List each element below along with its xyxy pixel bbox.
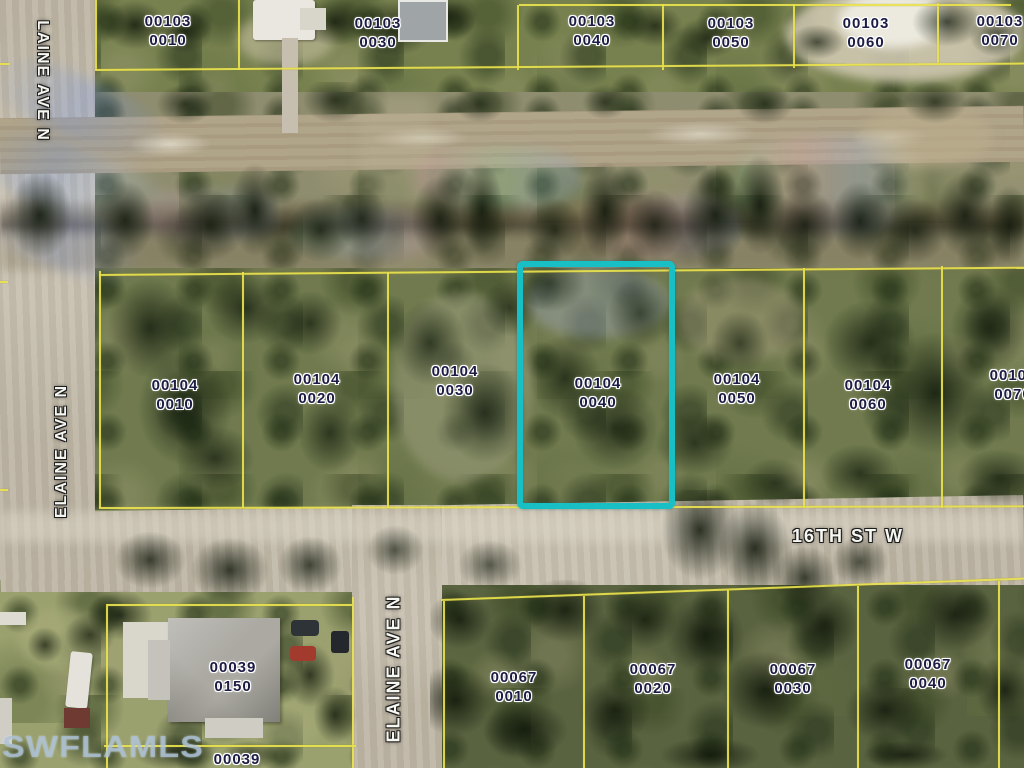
parcel-line [387, 272, 389, 508]
parcel-label-00104-0020: 00104 0020 [269, 370, 365, 408]
parcel-lot: 0060 [818, 33, 914, 52]
parcel-block: 00067 [605, 660, 701, 679]
driveway-top [282, 38, 298, 133]
parcel-line [857, 586, 859, 768]
street-label-elaine-bottom: ELAINE AVE N [384, 569, 405, 768]
street-label-elaine-top-left: LAINE AVE N [33, 0, 51, 181]
parcel-lot: 0070 [965, 385, 1024, 404]
parcel-block: 00103 [120, 12, 216, 31]
parcel-block: 00104 [550, 374, 646, 393]
parcel-label-00103-0070: 00103 0070 [952, 12, 1024, 50]
parcel-line [99, 271, 101, 508]
mls-watermark: SWFLAMLS [2, 729, 204, 765]
parcel-label-00067-0030: 00067 0030 [745, 660, 841, 698]
parcel-lot: 0030 [745, 679, 841, 698]
parcel-line [998, 581, 1000, 768]
parcel-lot: 0050 [689, 389, 785, 408]
parcel-lot: 0010 [127, 395, 223, 414]
car-dark-2 [331, 631, 349, 653]
parcel-lot: 0010 [466, 687, 562, 706]
tree-canopy-median-upper [0, 82, 1024, 132]
parcel-line [107, 604, 353, 606]
parcel-block: 00103 [683, 14, 779, 33]
parcel-block: 00103 [818, 14, 914, 33]
parcel-line [941, 266, 943, 508]
aerial-parcel-map: 00103 0010 00103 0030 00103 0040 00103 0… [0, 0, 1024, 768]
parcel-lot: 0150 [185, 677, 281, 696]
parcel-block: 00067 [466, 668, 562, 687]
parcel-lot: 9 [0, 652, 18, 671]
parcel-lot: 0050 [683, 33, 779, 52]
shed-red [64, 708, 90, 728]
parcel-block: 00104 [820, 376, 916, 395]
parcel-label-left-edge-partial: 9 [0, 652, 18, 671]
parcel-lot: 0060 [820, 395, 916, 414]
parcel-line [727, 590, 729, 768]
parcel-block: 00103 [952, 12, 1024, 31]
parcel-lot: 0010 [120, 31, 216, 50]
parcel-block: 00104 [965, 366, 1024, 385]
parcel-lot: 0020 [269, 389, 365, 408]
parcel-label-00103-0060: 00103 0060 [818, 14, 914, 52]
parcel-line [443, 601, 445, 768]
parcel-line [0, 281, 8, 283]
parcel-block: 00104 [127, 376, 223, 395]
parcel-lot: 0030 [407, 381, 503, 400]
parcel-line [238, 0, 240, 70]
parcel-line [793, 4, 795, 68]
parcel-lot: 0040 [544, 31, 640, 50]
house-bottom-wing [148, 640, 170, 700]
parcel-label-00104-0070: 00104 0070 [965, 366, 1024, 404]
parcel-lot: 0040 [550, 393, 646, 412]
parcel-label-00103-0030: 00103 0030 [330, 14, 426, 52]
parcel-line [583, 596, 585, 768]
street-label-16th-st-w: 16TH ST W [788, 526, 908, 547]
parcel-label-00104-0060: 00104 0060 [820, 376, 916, 414]
parcel-label-00104-0010: 00104 0010 [127, 376, 223, 414]
parcel-label-00103-0010: 00103 0010 [120, 12, 216, 50]
parcel-label-00039-0150: 00039 0150 [185, 658, 281, 696]
parcel-block: 00104 [689, 370, 785, 389]
parcel-label-00067-0020: 00067 0020 [605, 660, 701, 698]
parcel-line [95, 0, 97, 70]
parcel-lot: 0020 [605, 679, 701, 698]
parcel-block: 00104 [269, 370, 365, 389]
parcel-lot: 0030 [330, 33, 426, 52]
parcel-label-00067-0040: 00067 0040 [880, 655, 976, 693]
parcel-lot: 0070 [952, 31, 1024, 50]
parcel-label-00067-0010: 00067 0010 [466, 668, 562, 706]
car-dark-1 [291, 620, 319, 636]
parcel-block: 00104 [407, 362, 503, 381]
parcel-block: 00067 [880, 655, 976, 674]
house-top-annex [300, 8, 326, 30]
parcel-block: 00039 [185, 658, 281, 677]
parcel-line [517, 5, 519, 70]
street-label-elaine-mid-left: ELAINE AVE N [53, 351, 71, 551]
parcel-line [937, 3, 939, 63]
parcel-label-00103-0040: 00103 0040 [544, 12, 640, 50]
parcel-line [242, 272, 244, 508]
parcel-label-00104-0040-highlighted: 00104 0040 [550, 374, 646, 412]
parcel-block: 00103 [544, 12, 640, 31]
parcel-label-00104-0030: 00104 0030 [407, 362, 503, 400]
parcel-line [0, 489, 8, 491]
parcel-line [803, 268, 805, 508]
parcel-line [352, 597, 354, 768]
parcel-line [0, 63, 10, 65]
parcel-lot: 0040 [880, 674, 976, 693]
tree-canopy-median [0, 155, 1024, 273]
car-red [290, 646, 316, 661]
parcel-block: 00067 [745, 660, 841, 679]
parcel-line [519, 4, 1011, 6]
parcel-line [662, 4, 664, 70]
parcel-label-00103-0050: 00103 0050 [683, 14, 779, 52]
house-bottom-rear-patio [205, 718, 263, 738]
parcel-block: 00103 [330, 14, 426, 33]
edge-structure-1 [0, 612, 26, 625]
parcel-label-00104-0050: 00104 0050 [689, 370, 785, 408]
